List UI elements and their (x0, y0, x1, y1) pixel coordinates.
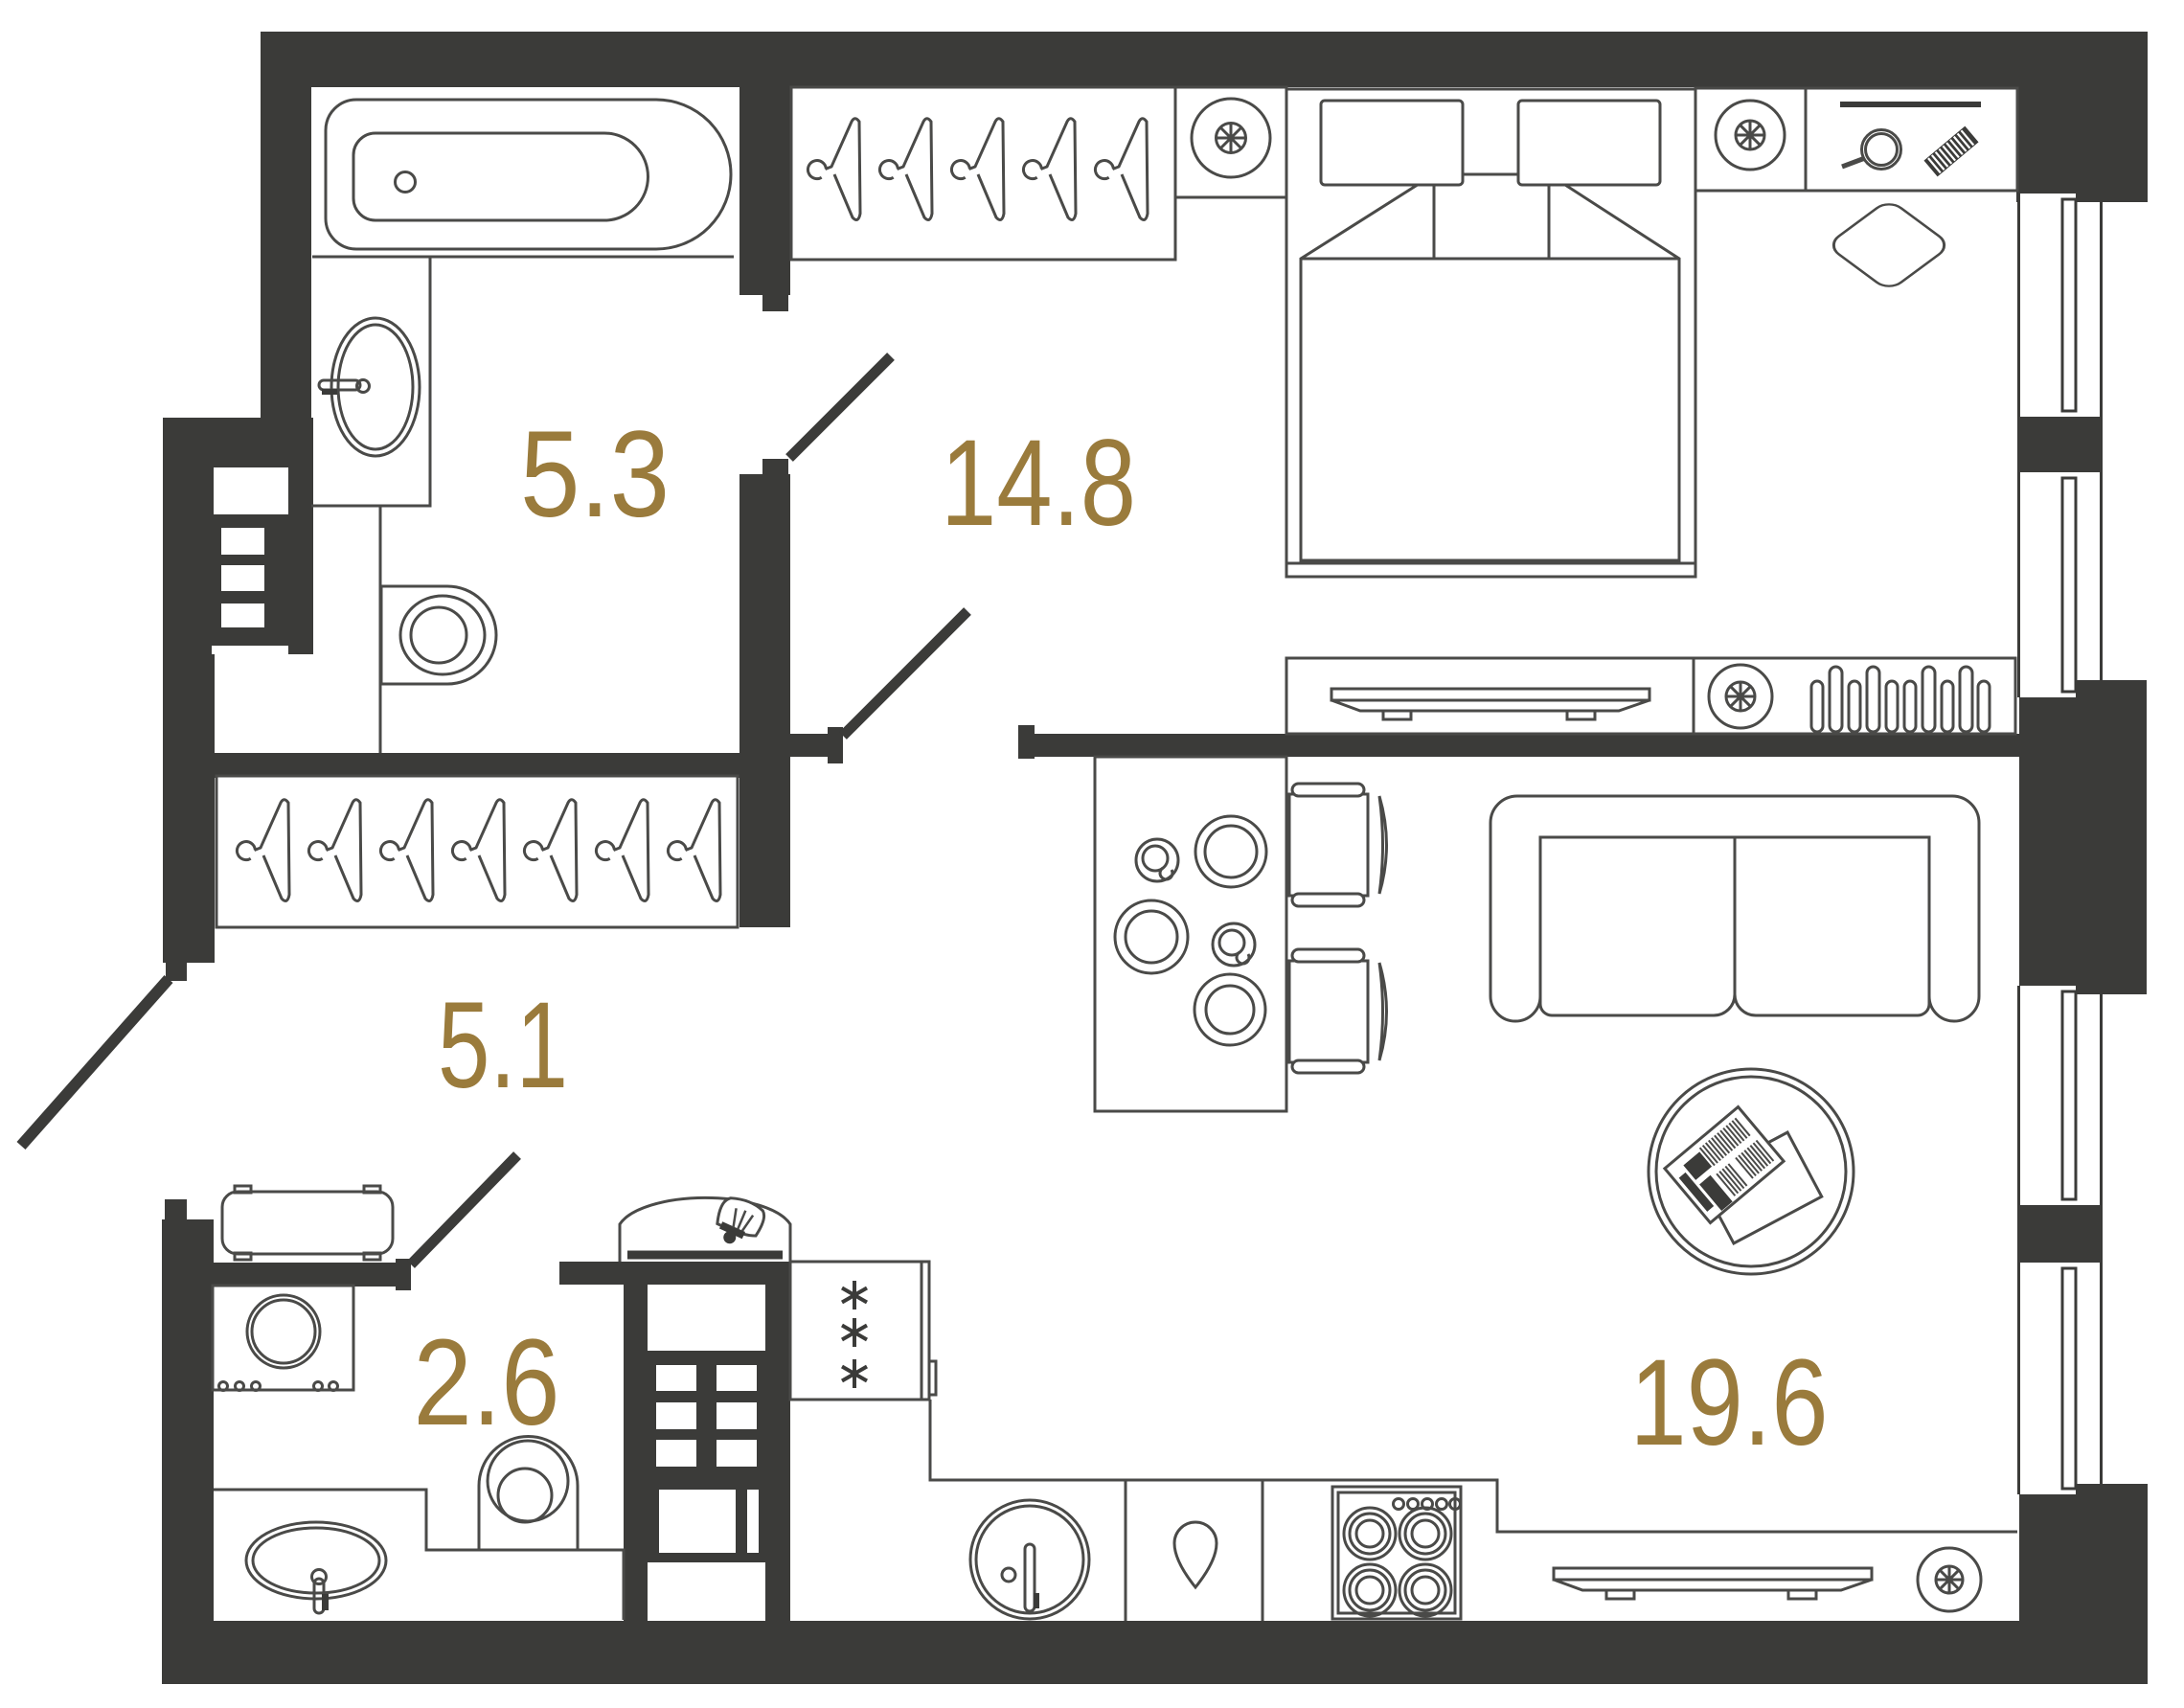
svg-text:19.6: 19.6 (1630, 1334, 1829, 1471)
svg-text:2.6: 2.6 (414, 1314, 560, 1451)
svg-text:5.1: 5.1 (438, 977, 568, 1114)
svg-text:14.8: 14.8 (941, 415, 1136, 552)
svg-text:5.3: 5.3 (520, 406, 670, 543)
